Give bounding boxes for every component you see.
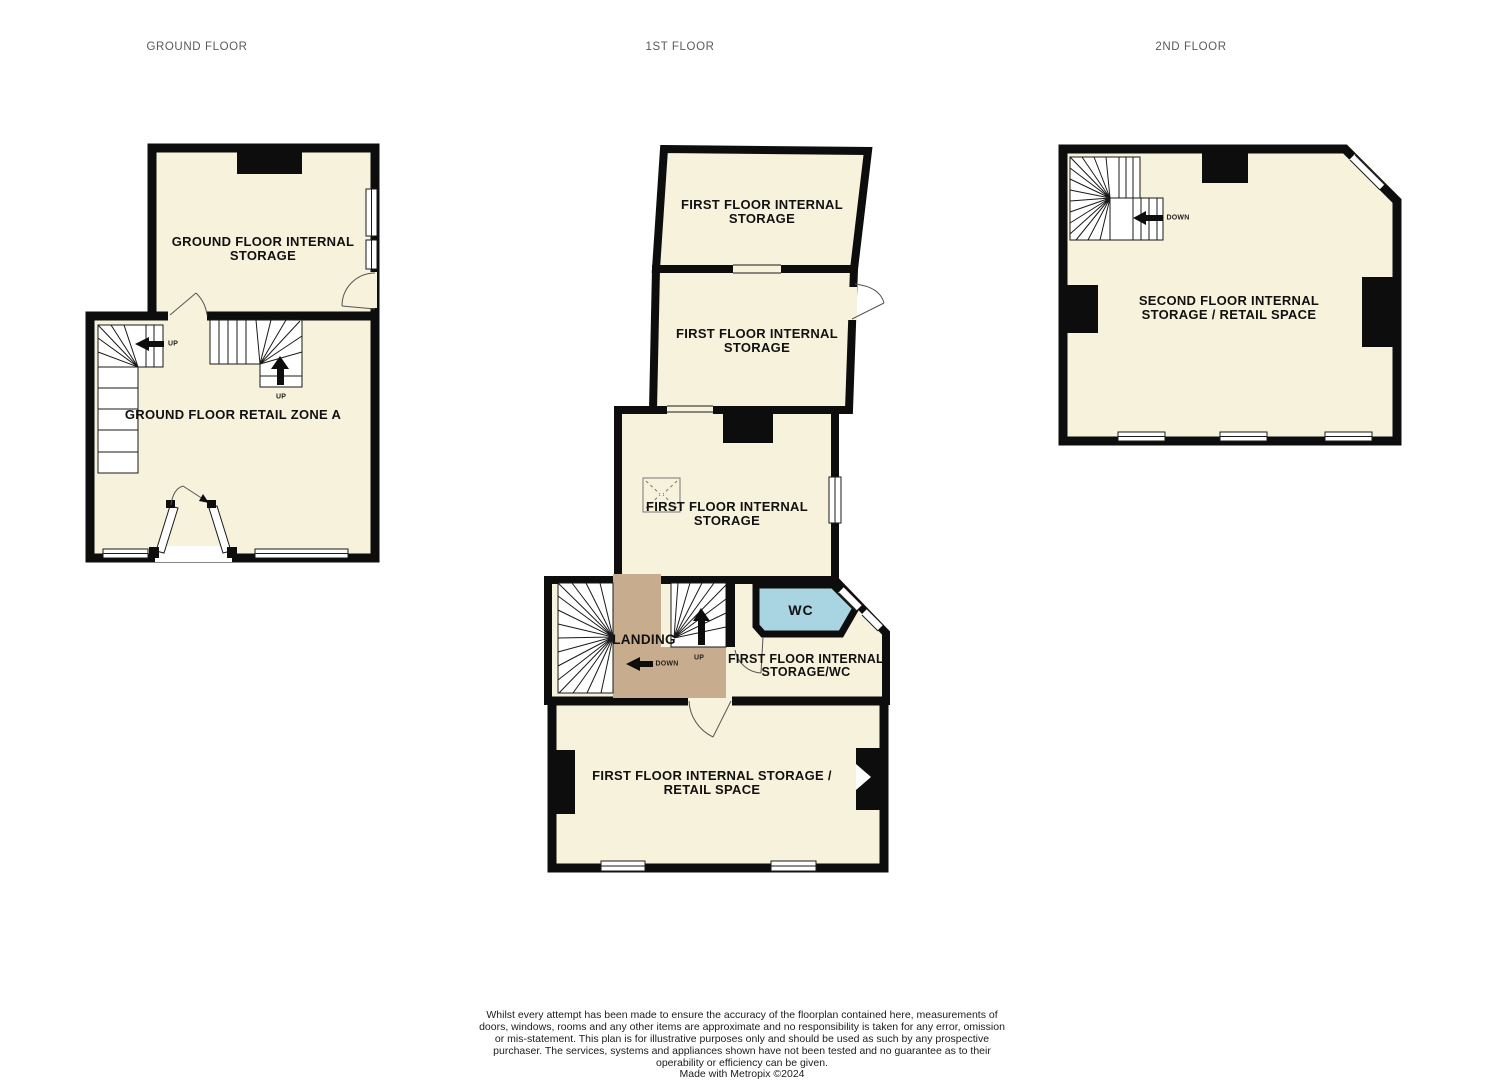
room-label-wc: WC xyxy=(788,603,813,617)
room-label-second-main: SECOND FLOOR INTERNAL STORAGE / RETAIL S… xyxy=(1109,294,1349,322)
second-floor-title: 2ND FLOOR xyxy=(1155,41,1226,53)
floorplan-page: GROUND FLOOR 1ST FLOOR 2ND FLOOR GROUND … xyxy=(0,0,1485,1080)
stair-label-down: DOWN xyxy=(1167,215,1190,222)
chimney-breast xyxy=(1059,285,1098,333)
room-label-first-storage-top: FIRST FLOOR INTERNAL STORAGE xyxy=(657,198,867,226)
room-label-ground-retail: GROUND FLOOR RETAIL ZONE A xyxy=(123,408,343,422)
chimney-breast xyxy=(723,406,773,443)
chimney-breast xyxy=(1202,145,1248,183)
chimney-breast xyxy=(549,750,575,814)
chimney-breast xyxy=(237,144,302,174)
room-label-first-storage-wc: FIRST FLOOR INTERNAL STORAGE/WC xyxy=(714,653,899,679)
room-label-first-storage-main: FIRST FLOOR INTERNAL STORAGE xyxy=(622,500,832,528)
chimney-breast xyxy=(1362,277,1397,347)
room-label-first-retail: FIRST FLOOR INTERNAL STORAGE / RETAIL SP… xyxy=(592,769,832,797)
staircase xyxy=(558,583,613,693)
first-floor-title: 1ST FLOOR xyxy=(645,41,714,53)
credit-text: Made with Metropix ©2024 xyxy=(679,1068,804,1080)
stair-label-up: UP xyxy=(276,394,286,401)
disclaimer-text: Whilst every attempt has been made to en… xyxy=(477,1009,1007,1069)
room-label-ground-storage: GROUND FLOOR INTERNAL STORAGE xyxy=(148,235,378,263)
internal-wall xyxy=(726,576,735,647)
room-label-landing: LANDING xyxy=(612,633,676,647)
stair-label-down: DOWN xyxy=(656,661,679,668)
ground-floor-plan xyxy=(90,144,379,562)
ground-floor-title: GROUND FLOOR xyxy=(146,41,247,53)
floorplan-drawing xyxy=(0,0,1485,1080)
chimney-breast xyxy=(856,748,884,810)
stair-label-up: UP xyxy=(694,655,704,662)
room-label-first-storage-mid: FIRST FLOOR INTERNAL STORAGE xyxy=(652,327,862,355)
stair-label-up: UP xyxy=(168,341,178,348)
staircase xyxy=(671,583,726,647)
window xyxy=(1118,432,1372,441)
